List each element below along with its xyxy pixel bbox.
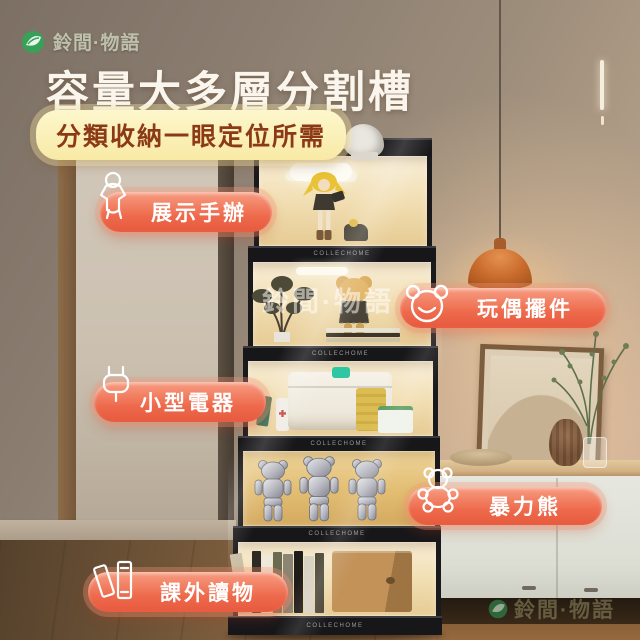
shelf-bar: COLLECHOME [233,526,441,542]
book-spine [304,556,314,613]
book-spine [294,551,303,613]
bottom-watermark-text: 鈴間·物語 [514,594,615,624]
sideboard-handle [584,588,598,592]
corner-post [436,542,441,616]
glass-vase [583,437,607,468]
label-small-appliances: 小型電器 [94,382,266,422]
wall-light-dash [601,116,604,125]
label-text: 玩偶擺件 [477,293,573,323]
label-plush-ornaments: 玩偶擺件 [400,288,606,328]
corner-post [238,451,243,526]
bottom-watermark: 鈴間·物語 [487,594,615,624]
wall-light-bar [600,60,604,110]
shelf-bar: COLLECHOME [243,346,438,361]
door-jamb [58,130,76,546]
book-spine [315,553,324,613]
shelf-bar: COLLECHOME [238,436,440,451]
brand-logo: 鈴間·物語 [20,28,140,55]
sideboard-handle [522,586,536,590]
bearbrick-figure [296,454,342,524]
bearbrick-figure [346,457,388,523]
cabinet-base: COLLECHOME [228,616,442,635]
label-bearbrick: 暴力熊 [408,487,602,525]
subtitle-badge: 分類收納一眼定位所需 [36,110,346,160]
pendant-lamp-cord [499,0,501,252]
shelf-brand-text: COLLECHOME [313,251,370,257]
decor-bowl [450,449,512,466]
brand-leaf-icon [20,29,46,55]
kraft-storage-box [332,551,412,612]
brand-logo-text: 鈴間·物語 [53,28,140,55]
floor-right [436,624,640,640]
corner-post [427,156,432,246]
box-latch [332,367,350,378]
bust-base [351,152,378,160]
label-display-figurines: 展示手辦 [100,192,272,232]
shelf-bar: COLLECHOME [248,246,436,262]
brand-leaf-icon [487,598,509,620]
anime-figure [299,170,349,244]
shelf-brand-text: COLLECHOME [308,531,365,537]
label-text: 小型電器 [140,387,236,417]
shelf-brand-text: COLLECHOME [310,441,367,447]
shelf-brand-text: COLLECHOME [306,623,363,629]
bearbrick-figure [252,458,294,524]
ribbed-vase [549,419,583,466]
label-text: 課外讀物 [160,577,256,607]
medicine-box [378,406,413,433]
mini-figure [344,224,368,241]
shelf-brand-text: COLLECHOME [312,351,369,357]
label-extracurricular-books: 課外讀物 [88,572,288,612]
corner-post [433,361,438,436]
label-text: 暴力熊 [489,491,561,521]
product-promo-image: COLLECHOME COLLECHOME COLLECHOME COLLECH… [0,0,640,640]
label-text: 展示手辦 [151,197,247,227]
stacked-books [326,328,400,342]
center-watermark: 鈴間·物語 [262,280,394,319]
